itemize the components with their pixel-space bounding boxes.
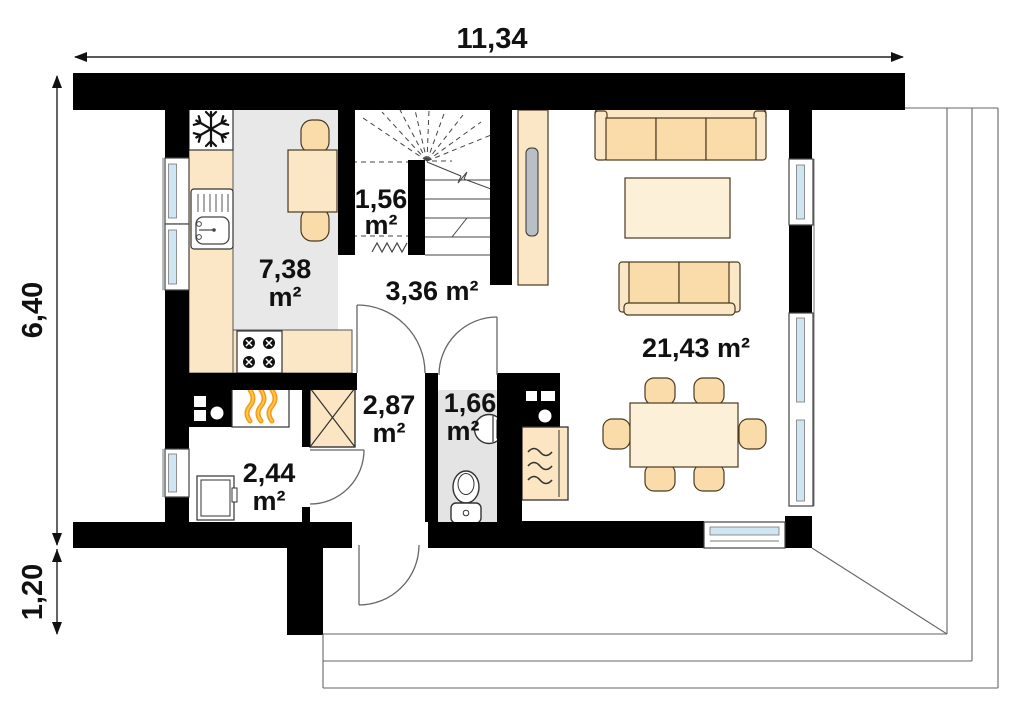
dining-table — [630, 403, 738, 467]
stove-icon — [237, 331, 282, 373]
coffee-table — [625, 178, 730, 238]
arrow-up-icon — [52, 75, 62, 88]
kitchen-table — [288, 150, 337, 212]
kitchen-chair — [301, 208, 329, 241]
chimney-shaft-icon — [310, 388, 355, 447]
sink-icon — [191, 189, 233, 249]
toilet-icon — [451, 471, 481, 523]
stair-clearance-zigzag — [372, 243, 407, 252]
sofa-three-seat — [595, 109, 766, 160]
vestibule-area-label: 2,87 — [363, 390, 416, 420]
wc-unit-label: m² — [447, 416, 480, 446]
wall-top — [73, 73, 905, 110]
dimension-width-label: 11,34 — [457, 23, 528, 55]
utility-area-label: 2,44 — [243, 458, 296, 488]
window — [165, 158, 189, 224]
dining-set — [603, 378, 766, 491]
arrow-down-icon — [52, 533, 62, 546]
dining-chair — [694, 464, 724, 491]
wall-bottom-left — [73, 522, 352, 548]
dining-chair — [645, 464, 675, 491]
storage-unit-label: m² — [365, 210, 398, 240]
vestibule-unit-label: m² — [373, 418, 406, 448]
wc-area-label: 1,66 — [444, 388, 497, 418]
kitchen-chair — [301, 120, 329, 153]
utility-unit-label: m² — [253, 486, 286, 516]
window — [789, 159, 813, 225]
living-room-area-label: 21,43 m² — [642, 333, 750, 363]
dining-chair — [645, 378, 675, 405]
terrace-sliding-door — [704, 522, 785, 548]
wall-bottom-living — [513, 521, 704, 548]
fireplace — [517, 373, 568, 500]
counter-black-unit — [189, 390, 233, 427]
dining-chair — [739, 419, 766, 449]
kitchen-unit-label: m² — [269, 282, 302, 312]
door-vestibule-to-hall — [357, 305, 425, 373]
arrow-left-icon — [74, 52, 87, 62]
window-tall — [789, 313, 813, 506]
fireplace-insert — [522, 427, 568, 500]
terrace-diagonal — [812, 548, 947, 634]
arrow-down-icon — [52, 622, 62, 635]
utility-appliance-icon — [197, 476, 237, 520]
door-wc — [439, 317, 497, 375]
window — [165, 224, 189, 290]
dining-chair — [603, 419, 630, 449]
window — [165, 449, 189, 497]
arrow-right-icon — [891, 52, 904, 62]
floor-plan-drawing: 11,34 6,40 1,20 7,38 m² 1,56 m² 3,36 m² … — [0, 0, 1024, 712]
tv-icon — [526, 148, 538, 236]
dining-chair — [694, 378, 724, 405]
door-entrance — [359, 545, 419, 605]
arrow-up-icon — [52, 549, 62, 562]
kitchen-counter-left — [189, 148, 233, 373]
floor-plan: 11,34 6,40 1,20 7,38 m² 1,56 m² 3,36 m² … — [0, 0, 1024, 712]
boiler-icon — [232, 386, 289, 427]
kitchen-area-label: 7,38 — [259, 254, 312, 284]
dimension-porch-label: 1,20 — [17, 564, 49, 620]
sofa-two-seat — [619, 262, 740, 315]
dimension-height-label: 6,40 — [17, 282, 49, 338]
door-utility — [310, 450, 364, 504]
porch-pillar — [287, 548, 323, 635]
hall-area-label: 3,36 m² — [385, 276, 478, 306]
